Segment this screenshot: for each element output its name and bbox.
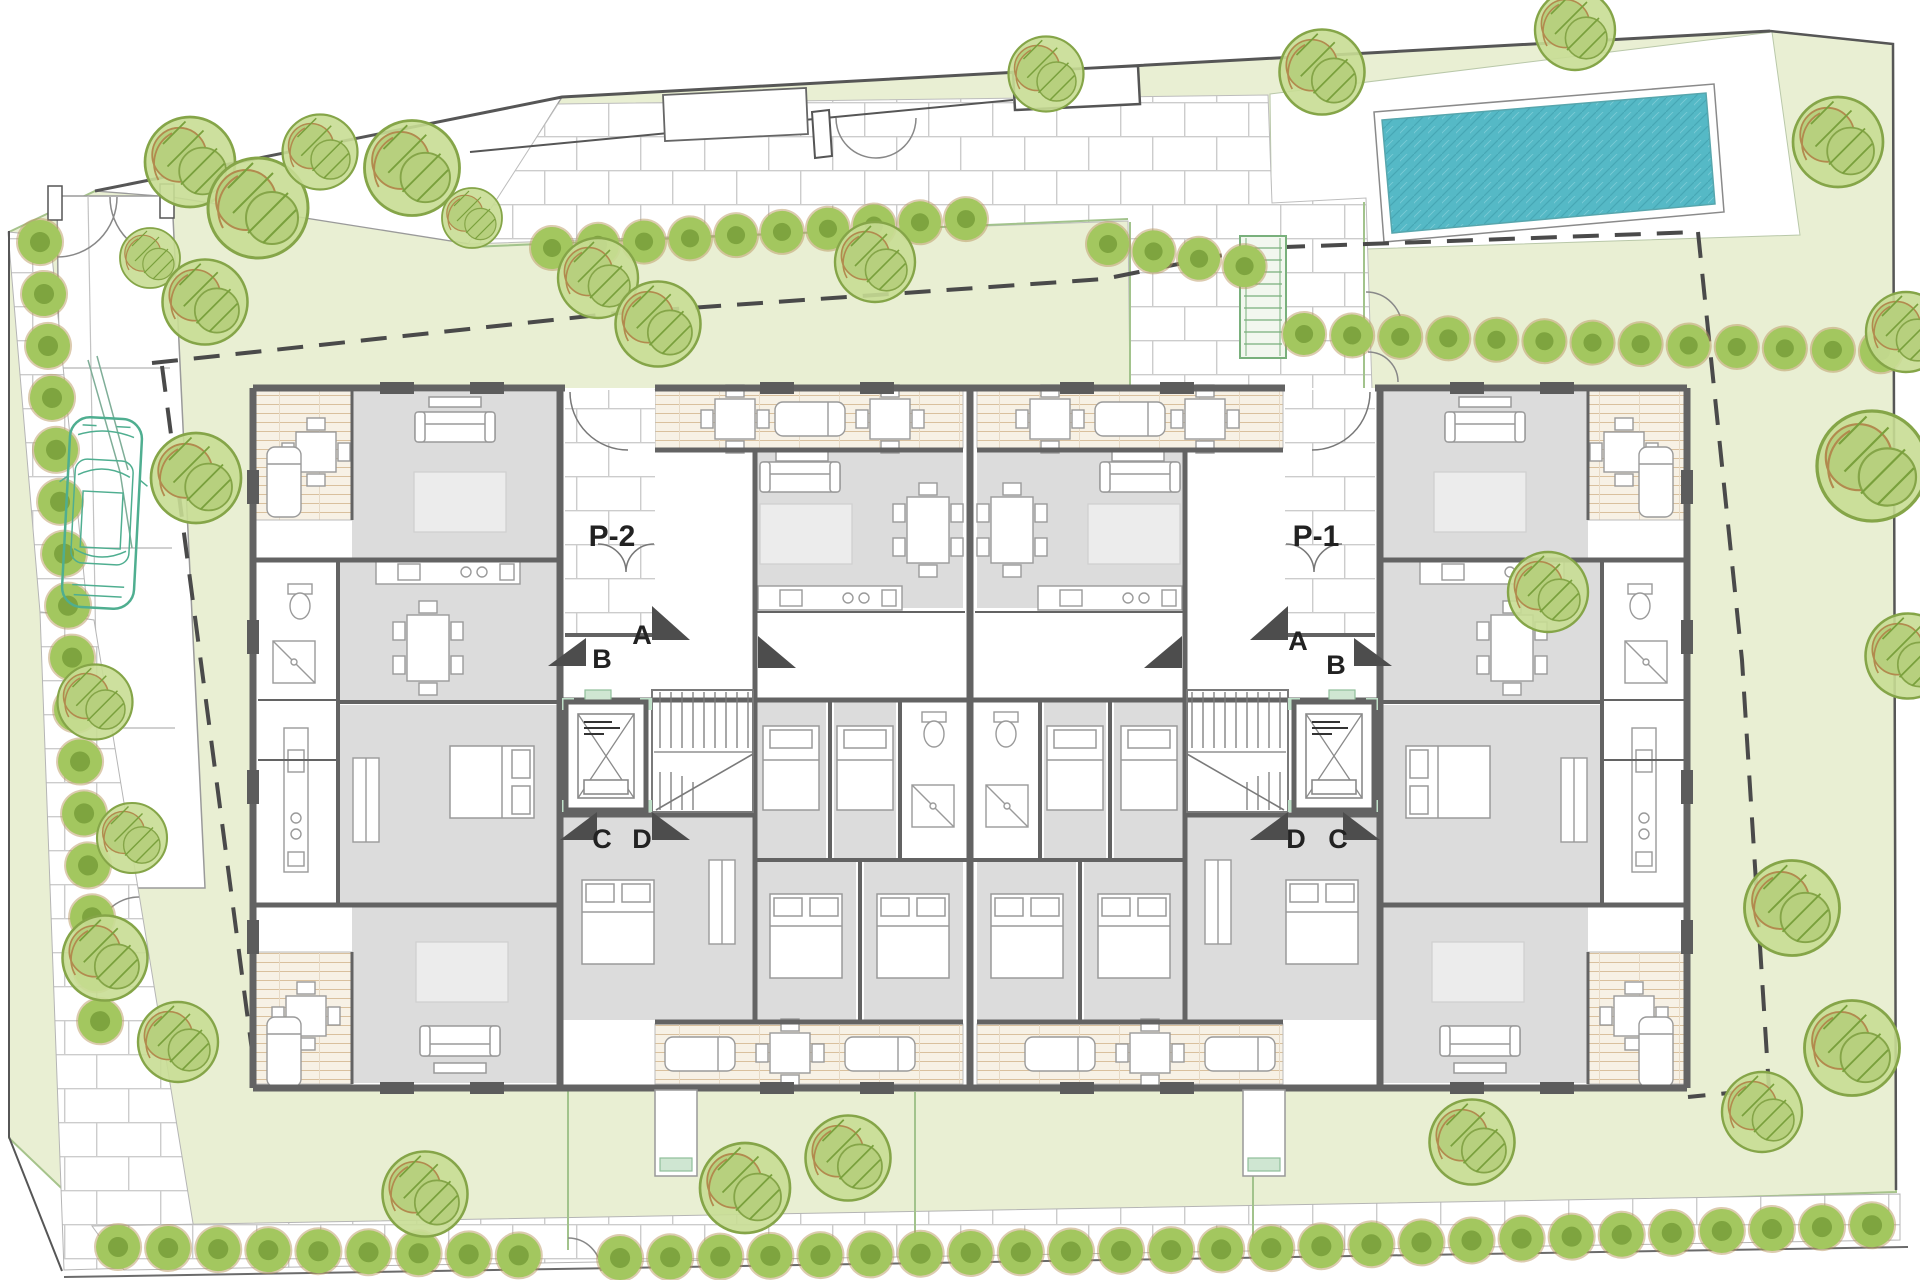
furniture-item — [434, 1063, 486, 1073]
label-door-c-left: C — [592, 824, 612, 854]
furniture-item — [1047, 726, 1103, 810]
tree — [442, 188, 502, 248]
label-door-c-right: C — [1328, 824, 1348, 854]
elevator-p2 — [562, 698, 652, 812]
tree — [151, 433, 241, 523]
furniture-item — [429, 397, 481, 407]
furniture-item — [420, 1026, 500, 1056]
furniture-item — [376, 560, 520, 584]
tree — [806, 1116, 891, 1201]
furniture-item — [1038, 586, 1182, 610]
tree — [1722, 1072, 1802, 1152]
furniture-item — [994, 712, 1018, 747]
furniture-item — [273, 641, 315, 683]
furniture-item — [414, 472, 506, 532]
tree — [700, 1143, 790, 1233]
label-door-d-left: D — [632, 824, 652, 854]
furniture-item — [922, 712, 946, 747]
furniture-item — [267, 1017, 301, 1087]
furniture-item — [450, 746, 534, 818]
porch-p1 — [1285, 390, 1375, 633]
furniture-item — [1561, 758, 1587, 842]
furniture-item — [1628, 584, 1652, 619]
furniture-item — [1205, 1037, 1275, 1071]
furniture-item — [416, 942, 508, 1002]
furniture-item — [284, 728, 308, 872]
furniture-item — [1286, 880, 1358, 964]
furniture-item — [760, 504, 852, 564]
furniture-item — [288, 584, 312, 619]
tree — [1009, 37, 1084, 112]
furniture-item — [1625, 641, 1667, 683]
furniture-item — [763, 726, 819, 810]
furniture-item — [758, 586, 902, 610]
porch-p2 — [565, 390, 655, 633]
furniture-item — [1100, 462, 1180, 492]
hedge-right — [1304, 334, 1906, 352]
furniture-item — [1454, 1063, 1506, 1073]
furniture-item — [1639, 447, 1673, 517]
tree — [1430, 1100, 1515, 1185]
tree — [1805, 1001, 1900, 1096]
furniture-item — [877, 894, 949, 978]
entry-ramp — [663, 88, 808, 141]
furniture-item — [415, 412, 495, 442]
label-door-b-right: B — [1326, 650, 1346, 680]
tree — [1508, 552, 1588, 632]
furniture-item — [760, 462, 840, 492]
furniture-item — [986, 785, 1028, 827]
furniture-item — [1121, 726, 1177, 810]
site-plan: P-2 P-1 A B C D A B D C — [0, 0, 1920, 1280]
tree — [365, 121, 460, 216]
furniture-item — [665, 1037, 735, 1071]
furniture-item — [1406, 746, 1490, 818]
furniture-item — [912, 785, 954, 827]
furniture-item — [709, 860, 735, 944]
furniture-item — [1088, 504, 1180, 564]
furniture-item — [1098, 894, 1170, 978]
label-door-a-left: A — [632, 620, 652, 650]
tree — [835, 222, 915, 302]
elevator-p1 — [1288, 698, 1378, 812]
furniture-item — [991, 894, 1063, 978]
furniture-item — [1434, 472, 1526, 532]
furniture-item — [353, 758, 379, 842]
tree — [616, 282, 701, 367]
tree — [63, 916, 148, 1001]
tree — [163, 260, 248, 345]
label-entrance-p1: P-1 — [1293, 520, 1340, 553]
building: P-2 P-1 A B C D A B D C — [247, 382, 1693, 1094]
furniture-item — [837, 726, 893, 810]
furniture-item — [1459, 397, 1511, 407]
furniture-item — [1440, 1026, 1520, 1056]
furniture-item — [1445, 412, 1525, 442]
furniture-item — [770, 894, 842, 978]
furniture-item — [1025, 1037, 1095, 1071]
label-door-a-right: A — [1288, 626, 1308, 656]
tree — [1745, 861, 1840, 956]
label-door-d-right: D — [1286, 824, 1306, 854]
tree — [1793, 97, 1883, 187]
furniture-item — [1639, 1017, 1673, 1087]
furniture-item — [1432, 942, 1524, 1002]
tree — [58, 665, 133, 740]
furniture-item — [582, 880, 654, 964]
label-door-b-left: B — [592, 644, 612, 674]
furniture-item — [1205, 860, 1231, 944]
furniture-item — [845, 1037, 915, 1071]
furniture-item — [1095, 402, 1165, 436]
tree — [1280, 29, 1365, 114]
furniture-item — [1632, 728, 1656, 872]
tree — [1535, 0, 1615, 70]
label-entrance-p2: P-2 — [589, 520, 636, 553]
tree — [1817, 411, 1920, 521]
tree — [283, 115, 358, 190]
tree — [97, 803, 167, 873]
furniture-item — [267, 447, 301, 517]
tree — [138, 1002, 218, 1082]
furniture-item — [775, 402, 845, 436]
tree — [383, 1152, 468, 1237]
